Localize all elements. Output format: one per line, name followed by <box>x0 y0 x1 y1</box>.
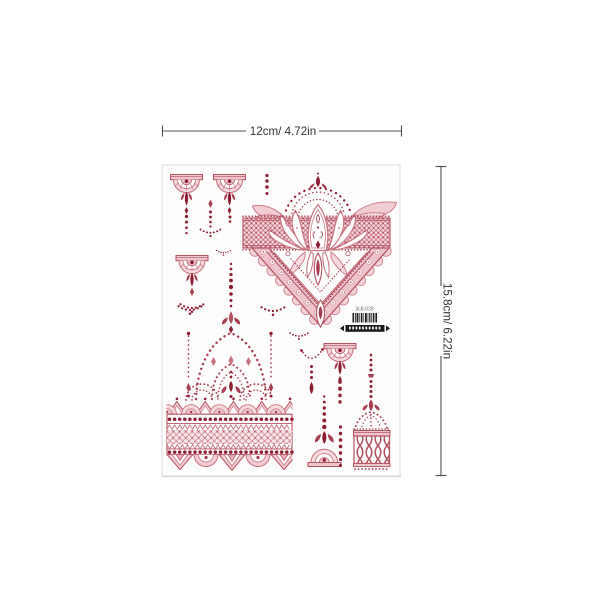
svg-text:15.8cm/ 6.22in: 15.8cm/ 6.22in <box>441 283 454 359</box>
svg-text:3c8-039: 3c8-039 <box>355 307 373 313</box>
svg-text:12cm/ 4.72in: 12cm/ 4.72in <box>250 125 316 138</box>
